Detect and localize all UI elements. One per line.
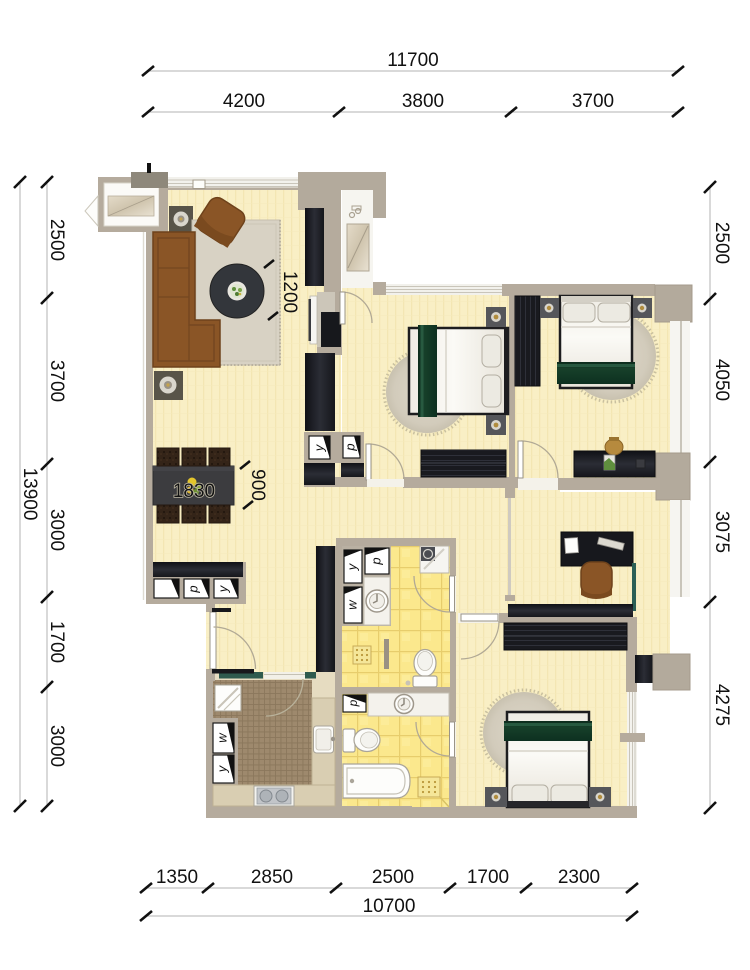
svg-text:p: p [346,699,360,707]
svg-text:p: p [368,557,383,565]
svg-text:3075: 3075 [711,511,732,553]
svg-text:1200: 1200 [279,271,300,313]
svg-text:p: p [342,443,357,451]
svg-text:3700: 3700 [46,360,67,402]
svg-text:1830: 1830 [173,481,215,502]
svg-text:w: w [214,732,229,743]
svg-text:3700: 3700 [572,91,614,112]
svg-text:2300: 2300 [558,867,600,888]
svg-text:13900: 13900 [19,468,40,521]
svg-text:3800: 3800 [402,91,444,112]
svg-text:1350: 1350 [156,867,198,888]
svg-text:11700: 11700 [387,50,438,71]
svg-text:10700: 10700 [363,896,416,917]
svg-text:2500: 2500 [711,222,732,264]
svg-text:2500: 2500 [46,219,67,261]
svg-text:3000: 3000 [46,725,67,767]
svg-text:2500: 2500 [372,867,414,888]
svg-text:p: p [185,585,200,593]
svg-text:3000: 3000 [46,509,67,551]
svg-text:900: 900 [247,469,268,501]
svg-text:1700: 1700 [46,621,67,663]
svg-text:w: w [344,599,359,610]
svg-text:4200: 4200 [223,91,265,112]
svg-text:2850: 2850 [251,867,293,888]
svg-text:4050: 4050 [711,359,732,401]
svg-text:4275: 4275 [711,684,732,726]
svg-text:1700: 1700 [467,867,509,888]
